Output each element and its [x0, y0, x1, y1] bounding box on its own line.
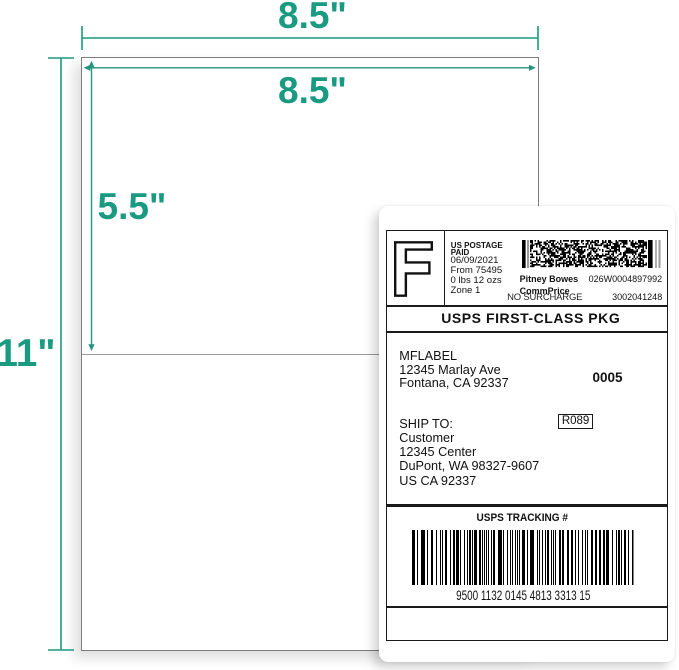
svg-text:8.5": 8.5" — [278, 70, 347, 111]
svg-text:5.5": 5.5" — [98, 186, 167, 227]
svg-text:8.5": 8.5" — [278, 0, 347, 36]
svg-text:11": 11" — [0, 332, 55, 375]
